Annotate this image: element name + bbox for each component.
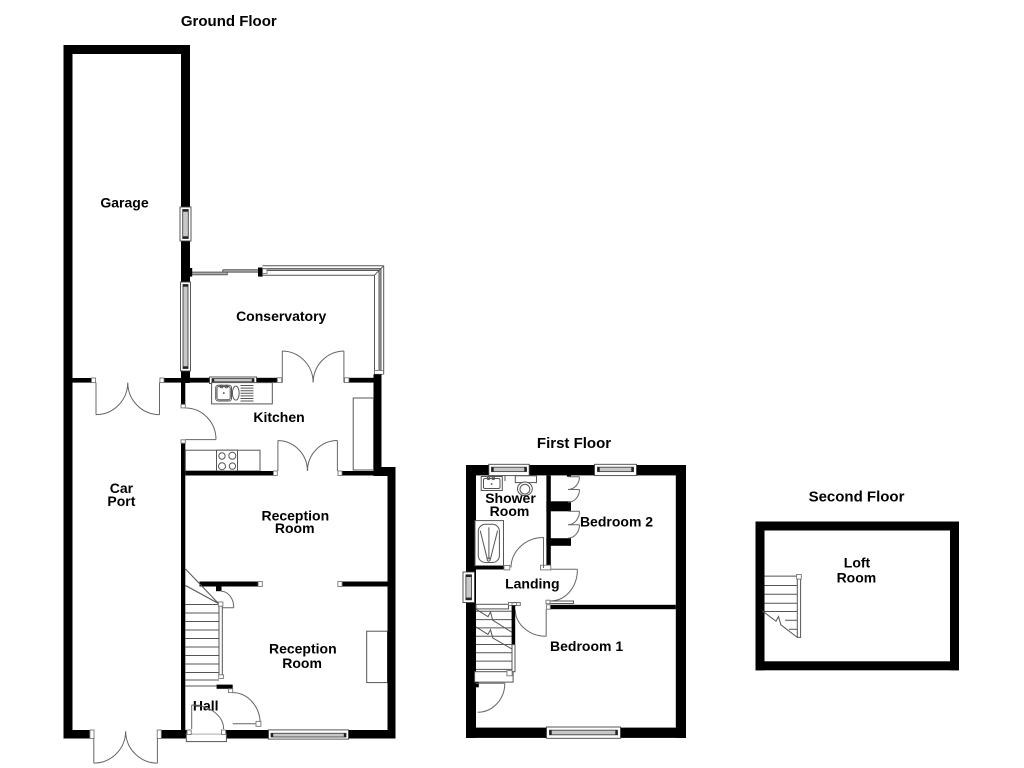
svg-text:Landing: Landing [505,576,559,592]
svg-text:Garage: Garage [100,194,148,210]
svg-text:Conservatory: Conservatory [236,308,326,324]
svg-text:Loft: Loft [844,554,871,570]
svg-text:Kitchen: Kitchen [253,409,304,425]
svg-text:Room: Room [837,569,877,585]
svg-text:First Floor: First Floor [537,435,611,452]
svg-text:Port: Port [107,493,135,509]
svg-text:Room: Room [282,655,322,671]
svg-text:Second Floor: Second Floor [809,489,905,506]
svg-text:Room: Room [275,520,315,536]
svg-text:Ground Floor: Ground Floor [181,13,277,30]
svg-text:Room: Room [490,503,530,519]
svg-text:Bedroom 1: Bedroom 1 [550,638,623,654]
svg-text:Bedroom 2: Bedroom 2 [580,514,653,530]
